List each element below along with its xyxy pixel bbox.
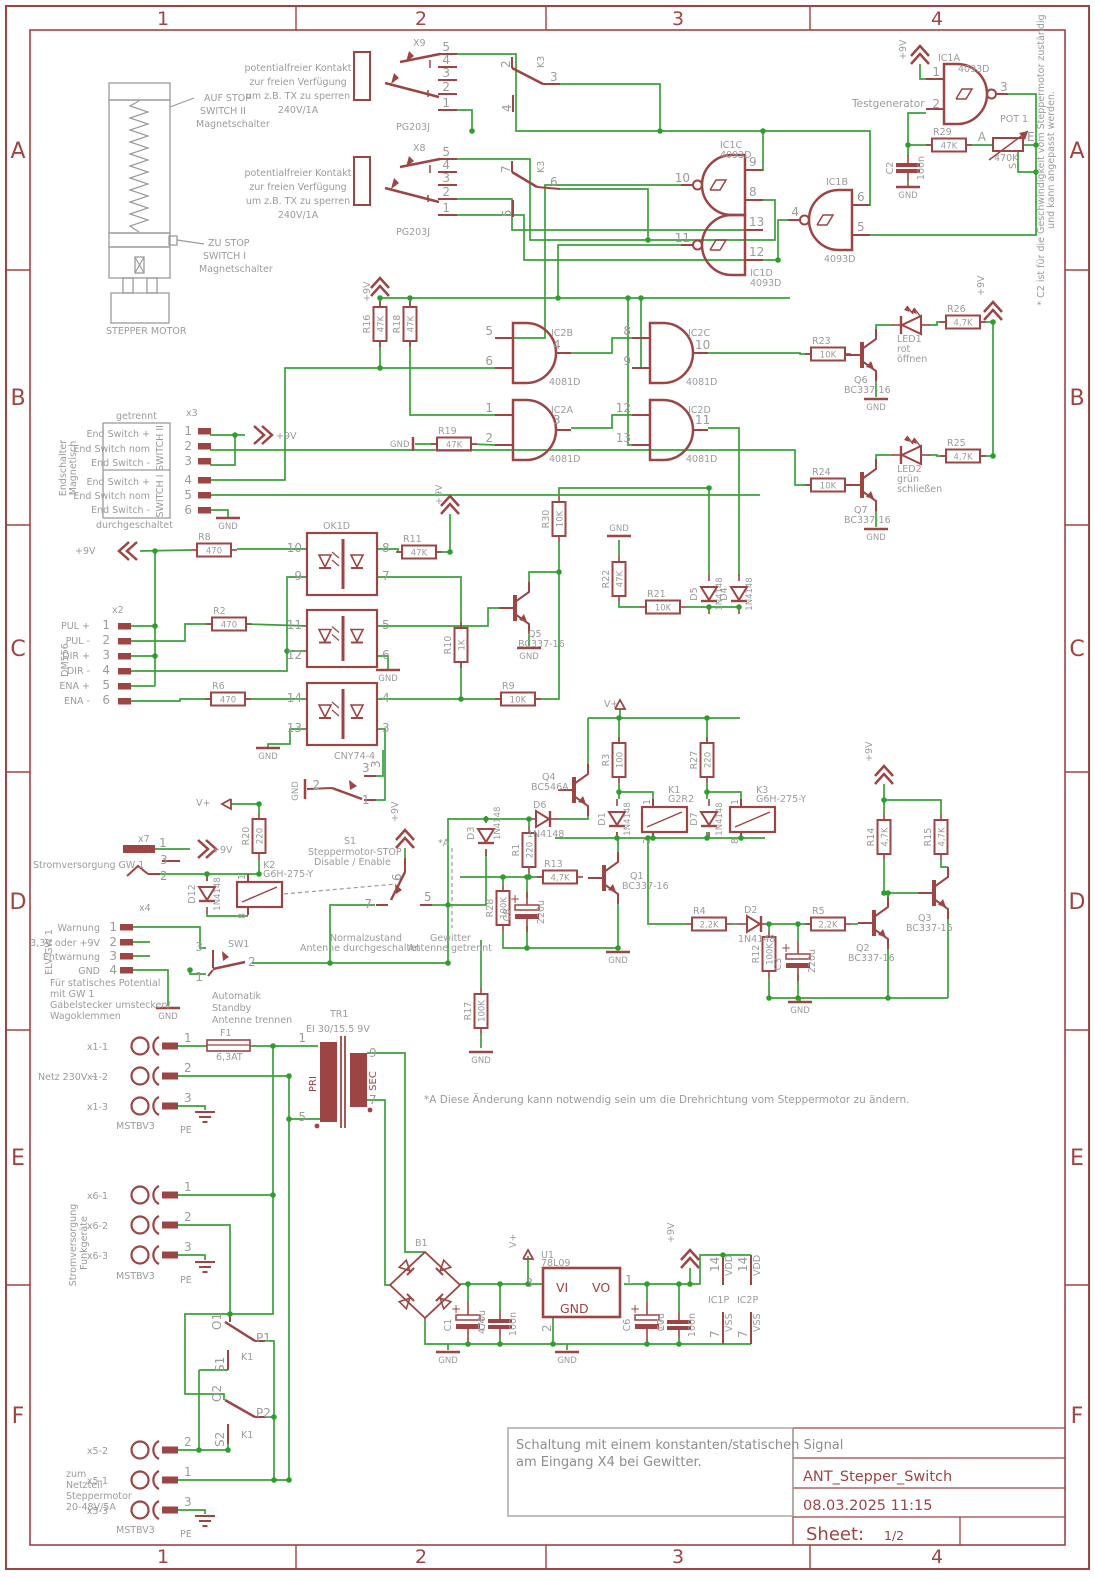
schematic-label: P1 bbox=[256, 1331, 271, 1345]
connector-clip bbox=[153, 1216, 159, 1234]
connector-socket bbox=[132, 1442, 149, 1459]
junction bbox=[616, 715, 622, 721]
schematic-label: VSS bbox=[724, 1313, 735, 1332]
schematic-label: 4 bbox=[382, 691, 390, 705]
schematic-label: R20 bbox=[241, 827, 252, 846]
schematic-label: x5-3 bbox=[87, 1506, 108, 1517]
connector-pin bbox=[162, 1507, 178, 1514]
supply-arrow-icon bbox=[681, 1258, 699, 1268]
schematic-label: 4,7K bbox=[881, 827, 891, 847]
wire bbox=[876, 455, 893, 459]
schematic-label: +9V bbox=[276, 431, 297, 442]
schematic-label: 1 bbox=[159, 836, 167, 850]
schematic-label: + bbox=[451, 1302, 461, 1316]
arrowhead bbox=[391, 178, 399, 189]
schematic-label: D1 bbox=[597, 812, 608, 825]
schematic-label: 2 bbox=[160, 869, 168, 883]
schematic-label: GND bbox=[258, 752, 278, 762]
connector-pad bbox=[118, 638, 131, 645]
schematic-label: C3 bbox=[773, 958, 784, 971]
schematic-label: *A bbox=[438, 838, 450, 849]
schematic-label: R9 bbox=[502, 681, 515, 692]
junction bbox=[225, 1447, 231, 1453]
symbol-outline bbox=[993, 138, 1023, 151]
and-gate bbox=[650, 400, 693, 460]
junction bbox=[465, 1341, 471, 1347]
and-gate bbox=[650, 323, 693, 383]
junction bbox=[152, 548, 158, 554]
inverter-bubble bbox=[693, 181, 702, 190]
junction bbox=[766, 921, 772, 927]
wire bbox=[708, 353, 811, 354]
arrowhead bbox=[222, 951, 229, 961]
schematic-label: 10K bbox=[820, 482, 837, 492]
bridge-diode bbox=[399, 1260, 414, 1275]
opto-photodiode bbox=[351, 705, 363, 717]
schematic-label: IC2P bbox=[737, 1295, 758, 1306]
schematic-label: 220u bbox=[807, 949, 818, 973]
schematic-label: + bbox=[510, 892, 520, 906]
schematic-label: E bbox=[1027, 130, 1035, 144]
schematic-label: 1 bbox=[184, 1465, 192, 1479]
schematic-label: 7 bbox=[736, 1330, 750, 1338]
supply-arrow-icon bbox=[127, 542, 137, 560]
gray-box bbox=[109, 233, 170, 247]
connector-pin bbox=[162, 1252, 178, 1259]
schematic-label: 5 bbox=[382, 618, 390, 632]
schematic-label: 3 bbox=[184, 454, 192, 468]
schematic-label: 2 bbox=[485, 431, 493, 445]
schematic-label: ZU STOP bbox=[208, 238, 250, 249]
schematic-label: 3,3V oder +9V bbox=[30, 938, 100, 949]
wire bbox=[377, 608, 501, 626]
wire bbox=[1018, 152, 1036, 172]
schematic-label: 10K bbox=[655, 604, 672, 614]
frame-row-label: D bbox=[1069, 890, 1086, 915]
schematic-label: GND bbox=[557, 1356, 577, 1366]
schematic-label: 1 bbox=[102, 618, 110, 632]
schematic-label: x2 bbox=[112, 605, 124, 616]
schematic-label: ENA - bbox=[64, 696, 90, 707]
symbol-fill bbox=[350, 1053, 367, 1107]
wire bbox=[707, 792, 741, 799]
symbol-line bbox=[512, 172, 537, 187]
transistor-base bbox=[572, 777, 576, 803]
junction bbox=[676, 1341, 682, 1347]
junction bbox=[152, 623, 158, 629]
frame-column-label: 2 bbox=[415, 8, 427, 30]
schematic-label: 4,7K bbox=[953, 453, 973, 463]
schematic-label: Magnetschalter bbox=[199, 264, 273, 275]
schematic-label: 6 bbox=[382, 648, 390, 662]
wire bbox=[425, 1318, 751, 1344]
dashed-line bbox=[284, 884, 396, 894]
note-line2: am Eingang X4 bei Gewitter. bbox=[516, 1455, 702, 1470]
schematic-label: 470K bbox=[994, 153, 1019, 164]
opto-arrow bbox=[332, 627, 339, 633]
connector-clip bbox=[153, 1441, 159, 1459]
connector-pad bbox=[118, 653, 131, 660]
wire bbox=[560, 84, 660, 131]
connector-pad bbox=[198, 507, 211, 514]
wire bbox=[457, 215, 778, 260]
schematic-label: MSTBV3 bbox=[116, 1271, 155, 1282]
and-gate bbox=[513, 400, 556, 460]
schematic-label: 2 bbox=[184, 1210, 192, 1224]
junction bbox=[704, 789, 710, 795]
arrowhead bbox=[349, 780, 357, 790]
schematic-label: IC1P bbox=[708, 1295, 729, 1306]
schematic-label: +9V bbox=[898, 39, 909, 60]
schematic-label: R29 bbox=[933, 127, 952, 138]
schematic-label: 47K bbox=[411, 549, 428, 559]
schematic-label: 9 bbox=[623, 354, 631, 368]
junction bbox=[526, 816, 532, 822]
schematic-label: 470 bbox=[221, 621, 237, 631]
opto-arrow bbox=[332, 710, 339, 716]
schematic-label: OK1D bbox=[323, 521, 350, 532]
schematic-label: schließen bbox=[897, 484, 942, 495]
diode bbox=[478, 829, 494, 842]
schematic-label: VO bbox=[592, 1280, 610, 1295]
schematic-label: 4,7K bbox=[953, 319, 973, 329]
schematic-label: 14 bbox=[287, 691, 302, 705]
frame-row-label: B bbox=[10, 386, 25, 411]
schematic-label: R10 bbox=[443, 636, 454, 655]
connector-clip bbox=[153, 1471, 159, 1489]
symbol-line bbox=[225, 1400, 255, 1417]
opto-led bbox=[319, 705, 331, 717]
gray-line bbox=[177, 240, 204, 244]
junction bbox=[256, 801, 262, 807]
schematic-label: 5 bbox=[102, 678, 110, 692]
schematic-label: 10u bbox=[656, 1313, 667, 1331]
junction bbox=[286, 1116, 292, 1122]
schematic-label: zur freien Verfügung bbox=[249, 77, 346, 88]
schematic-label: + bbox=[781, 941, 791, 955]
schematic-label: 1 bbox=[730, 799, 741, 805]
schematic-label: 1 bbox=[625, 1273, 633, 1287]
schematic-label: 5 bbox=[424, 890, 432, 904]
connector-pin bbox=[162, 1103, 178, 1110]
schematic-label: 1 bbox=[184, 424, 192, 438]
schematic-label: BC337-16 bbox=[906, 923, 953, 934]
schematic-label: 1N4148 bbox=[213, 877, 223, 910]
junction bbox=[500, 874, 506, 880]
collector bbox=[515, 582, 529, 602]
schematic-label: 3 bbox=[195, 940, 203, 954]
schematic-label: 1 bbox=[485, 401, 493, 415]
schematic-label: End Switch + bbox=[87, 429, 150, 440]
schematic-label: +9V bbox=[212, 845, 233, 856]
junction bbox=[469, 128, 475, 134]
symbol-line bbox=[332, 788, 362, 799]
schematic-label: 240V/1A bbox=[278, 210, 319, 221]
schematic-label: 2 bbox=[109, 935, 117, 949]
arrowhead bbox=[391, 73, 399, 84]
schematic-label: O2 bbox=[210, 1385, 224, 1402]
connector-pad bbox=[198, 458, 211, 465]
junction bbox=[881, 797, 887, 803]
schematic-label: S1 bbox=[213, 1357, 227, 1372]
schematic-label: GND bbox=[790, 1006, 810, 1016]
schematic-label: Antenne durchgeschaltet bbox=[300, 943, 420, 954]
schematic-label: C1 bbox=[443, 1319, 454, 1332]
collector bbox=[862, 329, 876, 349]
connector-pin bbox=[162, 1222, 178, 1229]
diode-bar bbox=[436, 1294, 443, 1301]
opto-arrow bbox=[332, 552, 339, 558]
schematic-label: C8 bbox=[502, 909, 513, 922]
schematic-label: BC337-16 bbox=[844, 385, 891, 396]
schematic-label: +9V bbox=[75, 546, 96, 557]
schematic-label: 10K bbox=[820, 351, 837, 361]
schematic-label: x5-2 bbox=[87, 1446, 108, 1457]
inverter-bubble bbox=[693, 241, 702, 250]
schematic-label: x4 bbox=[139, 903, 151, 914]
wire bbox=[178, 1106, 205, 1110]
schematic-label: 10 bbox=[287, 541, 302, 555]
gray-box bbox=[123, 278, 133, 293]
schematic-label: ENA + bbox=[59, 681, 90, 692]
junction bbox=[204, 871, 210, 877]
junction bbox=[644, 1281, 650, 1287]
schematic-label: 12 bbox=[749, 245, 764, 259]
schematic-label: BC337-16 bbox=[518, 639, 565, 650]
wire bbox=[210, 368, 495, 480]
junction bbox=[271, 1414, 277, 1420]
schematic-label: VDD bbox=[724, 1255, 735, 1276]
schematic-label: D7 bbox=[689, 812, 700, 825]
schematic-label: 2 bbox=[442, 185, 450, 199]
schematic-label: 8 bbox=[749, 185, 757, 199]
connector-pad bbox=[118, 623, 131, 630]
schematic-label: 3 bbox=[184, 1091, 192, 1105]
schematic-label: 4 bbox=[553, 338, 561, 352]
connector-pin bbox=[162, 1477, 178, 1484]
symbol-line bbox=[390, 1252, 460, 1318]
supply-arrow-icon bbox=[984, 310, 1002, 320]
schematic-label: zum bbox=[66, 1469, 86, 1480]
schematic-label: 1N4148 bbox=[738, 934, 775, 945]
schematic-label: 220 bbox=[256, 828, 266, 844]
symbol-fill bbox=[123, 845, 155, 853]
schematic-label: R1 bbox=[511, 844, 522, 857]
schematic-label: X8 bbox=[413, 143, 426, 154]
schematic-label: Für statisches Potential bbox=[50, 978, 160, 989]
schematic-label: BC546A bbox=[531, 782, 569, 793]
schematic-label: IC1A bbox=[938, 53, 960, 64]
wire bbox=[178, 1510, 205, 1514]
transistor-base bbox=[860, 472, 864, 498]
connector-socket bbox=[132, 1247, 149, 1264]
schematic-label: 47K bbox=[377, 315, 387, 332]
schematic-label: 6,3AT bbox=[216, 1052, 243, 1063]
schematic-label: 2 bbox=[102, 633, 110, 647]
wire bbox=[558, 245, 682, 298]
schematic-label: G2R2 bbox=[668, 794, 694, 805]
junction bbox=[497, 1341, 503, 1347]
schematic-label: R6 bbox=[212, 681, 225, 692]
schematic-label: Steppermotor bbox=[66, 1491, 132, 1502]
collector bbox=[874, 897, 888, 917]
schematic-label: + bbox=[630, 1302, 640, 1316]
connector-pad bbox=[118, 698, 131, 705]
schematic-label: 11 bbox=[287, 618, 302, 632]
frame-row-label: C bbox=[1069, 637, 1084, 662]
schematic-label: 11 bbox=[675, 231, 690, 245]
schematic-label: 2,2K bbox=[699, 921, 719, 931]
schematic-label: 1N4148 bbox=[745, 577, 755, 610]
schematic-label: 100n bbox=[508, 1312, 519, 1336]
schematic-label: R2 bbox=[213, 606, 226, 617]
schematic-label: R16 bbox=[362, 315, 373, 334]
schematic-label: VI bbox=[556, 1280, 568, 1295]
connector-clip bbox=[153, 1037, 159, 1055]
supply-arrow-icon bbox=[198, 840, 208, 858]
junction bbox=[256, 871, 262, 877]
schematic-label: 4 bbox=[442, 158, 450, 172]
schematic-label: O1 bbox=[210, 1313, 224, 1330]
collector bbox=[862, 459, 876, 479]
wire bbox=[130, 699, 211, 701]
schematic-label: *A Diese Änderung kann notwendig sein um… bbox=[424, 1093, 909, 1106]
junction bbox=[556, 569, 562, 575]
connector-pin bbox=[162, 1043, 178, 1050]
schematic-label: +9V bbox=[434, 484, 445, 505]
schematic-label: End Switch nom bbox=[73, 444, 150, 455]
junction bbox=[885, 995, 891, 1001]
schematic-label: 3 bbox=[442, 66, 450, 80]
schematic-label: 4 bbox=[184, 473, 192, 487]
wire bbox=[503, 931, 618, 948]
connector-socket bbox=[132, 1217, 149, 1234]
junction bbox=[766, 995, 772, 1001]
schematic-label: End Switch + bbox=[87, 477, 150, 488]
schematic-label: AUF STOP bbox=[204, 93, 251, 104]
schematic-label: 3 bbox=[442, 171, 450, 185]
schematic-label: 3 bbox=[1000, 80, 1008, 94]
schematic-label: 10 bbox=[695, 338, 710, 352]
schematic-label: MSTBV3 bbox=[116, 1121, 155, 1132]
schematic-label: GND bbox=[438, 1356, 458, 1366]
opto-arrow bbox=[332, 635, 339, 641]
schematic-label: 2 bbox=[184, 1435, 192, 1449]
wire bbox=[571, 338, 633, 353]
schematic-label: SWITCH II bbox=[155, 425, 166, 471]
connector-pad bbox=[198, 492, 211, 499]
junction bbox=[795, 995, 801, 1001]
schematic-label: GND bbox=[291, 781, 301, 801]
schematic-label: 6 bbox=[485, 354, 493, 368]
schematic-label: PE bbox=[180, 1275, 192, 1286]
schmitt-icon bbox=[956, 89, 972, 99]
schematic-label: GND bbox=[898, 191, 918, 201]
junction bbox=[152, 653, 158, 659]
schematic-label: GND bbox=[390, 440, 410, 450]
wire bbox=[619, 792, 653, 799]
schematic-label: +9V bbox=[390, 801, 401, 822]
schematic-label: R28 bbox=[485, 899, 496, 918]
schematic-label: x1-1 bbox=[87, 1042, 108, 1053]
junction bbox=[615, 945, 621, 951]
junction bbox=[687, 1281, 693, 1287]
frame-column-label: 1 bbox=[157, 8, 169, 30]
schematic-label: R23 bbox=[812, 336, 831, 347]
symbol-line bbox=[400, 159, 440, 167]
frame-row-label: A bbox=[1069, 139, 1084, 164]
schematic-label: PRI bbox=[308, 1076, 319, 1092]
schmitt-icon bbox=[817, 215, 833, 225]
schematic-label: R27 bbox=[689, 751, 700, 770]
schematic-label: +9V bbox=[362, 281, 373, 302]
schematic-label: 470u bbox=[477, 1310, 488, 1334]
schematic-label: 3 bbox=[362, 761, 370, 775]
schematic-label: 1 bbox=[442, 96, 450, 110]
connector-clip bbox=[153, 1186, 159, 1204]
schematic-label: A bbox=[978, 130, 987, 144]
schematic-label: VDD bbox=[752, 1255, 763, 1276]
schematic-label: Stromversorgung GW 1 bbox=[33, 860, 144, 871]
schematic-label: 2 bbox=[184, 1061, 192, 1075]
connector-clip bbox=[153, 1097, 159, 1115]
junction bbox=[524, 945, 530, 951]
schematic-label: 2,2K bbox=[818, 921, 838, 931]
schematic-label: 78L09 bbox=[541, 1258, 570, 1269]
junction bbox=[625, 295, 631, 301]
schematic-label: STEPPER MOTOR bbox=[106, 326, 187, 337]
polarity-dot bbox=[315, 1124, 320, 1129]
schematic-label: 2 bbox=[540, 1324, 554, 1332]
schematic-label: 8 bbox=[730, 838, 741, 844]
schematic-label: G6H-275-Y bbox=[756, 794, 806, 805]
schematic-label: 1N4148 bbox=[623, 802, 633, 835]
transistor-base bbox=[513, 595, 517, 621]
schematic-label: Gabelstecker umstecken/ bbox=[50, 1000, 171, 1011]
schematic-label: 220 bbox=[526, 842, 536, 858]
junction bbox=[483, 816, 489, 822]
schematic-label: R5 bbox=[812, 906, 825, 917]
junction bbox=[465, 1281, 471, 1287]
junction bbox=[377, 295, 383, 301]
schematic-label: 14 bbox=[736, 1257, 750, 1272]
junction bbox=[232, 432, 238, 438]
schematic-label: 5 bbox=[298, 1110, 306, 1124]
schematic-canvas: 11223344AABBCCDDEEFF R2947KR264,7KR2310K… bbox=[0, 0, 1095, 1575]
schematic-label: 47K bbox=[616, 570, 626, 587]
junction bbox=[645, 237, 651, 243]
schematic-label: 4081D bbox=[549, 454, 581, 465]
schematic-label: getrennt bbox=[116, 411, 157, 422]
transistor-base bbox=[860, 342, 864, 368]
schematic-label: ELV GW 1 bbox=[44, 929, 55, 975]
schematic-label: 47K bbox=[446, 441, 463, 451]
schematic-label: 4 bbox=[500, 104, 514, 112]
transistor-base bbox=[602, 865, 606, 891]
schematic-label: 5 bbox=[485, 324, 493, 338]
schematic-label: V+ bbox=[604, 699, 618, 710]
junction bbox=[706, 485, 712, 491]
diode-bar bbox=[407, 1294, 414, 1301]
junction bbox=[990, 453, 996, 459]
connector-pad bbox=[198, 443, 211, 450]
junction bbox=[407, 295, 413, 301]
junction bbox=[775, 257, 781, 263]
schematic-label: 11 bbox=[695, 413, 710, 427]
symbol-outline bbox=[354, 157, 370, 205]
schematic-label: EI 30/15.5 9V bbox=[306, 1024, 370, 1035]
schematic-label: End Switch - bbox=[91, 505, 150, 516]
